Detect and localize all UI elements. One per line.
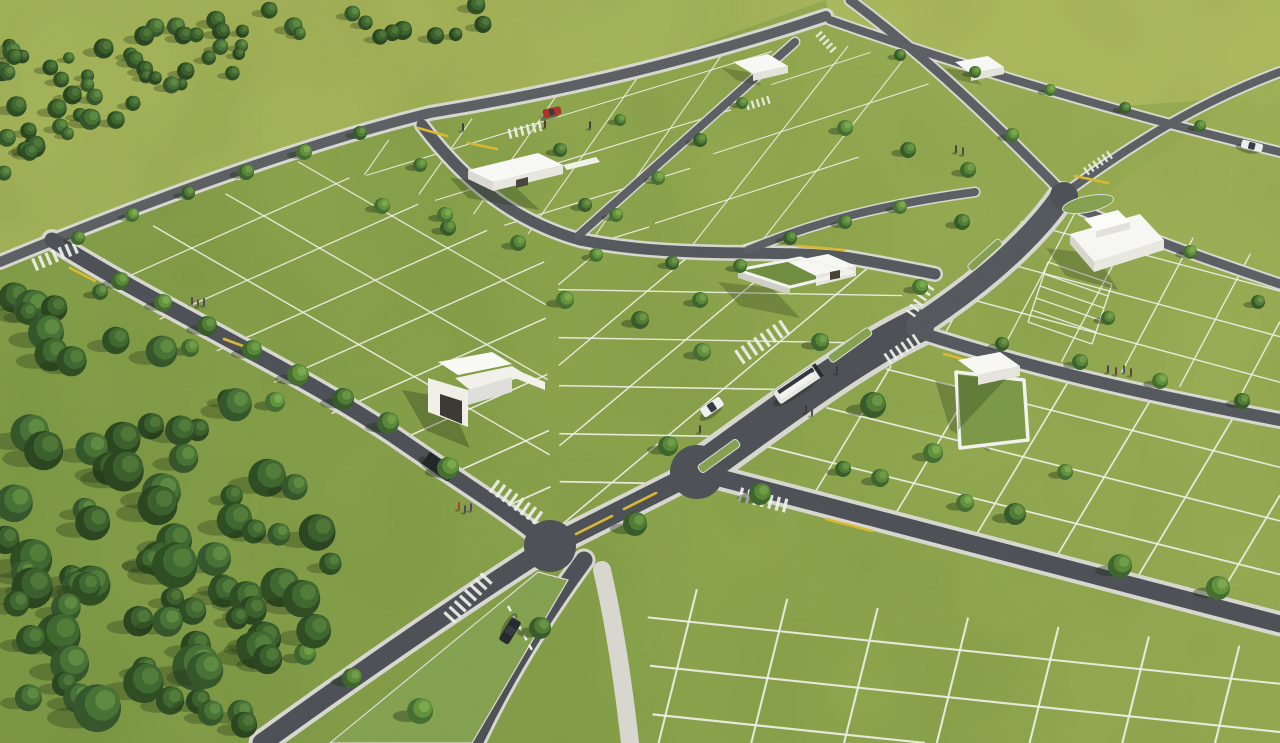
film-grain — [0, 0, 1280, 743]
aerial-subdivision-render — [0, 0, 1280, 743]
scene-svg — [0, 0, 1280, 743]
